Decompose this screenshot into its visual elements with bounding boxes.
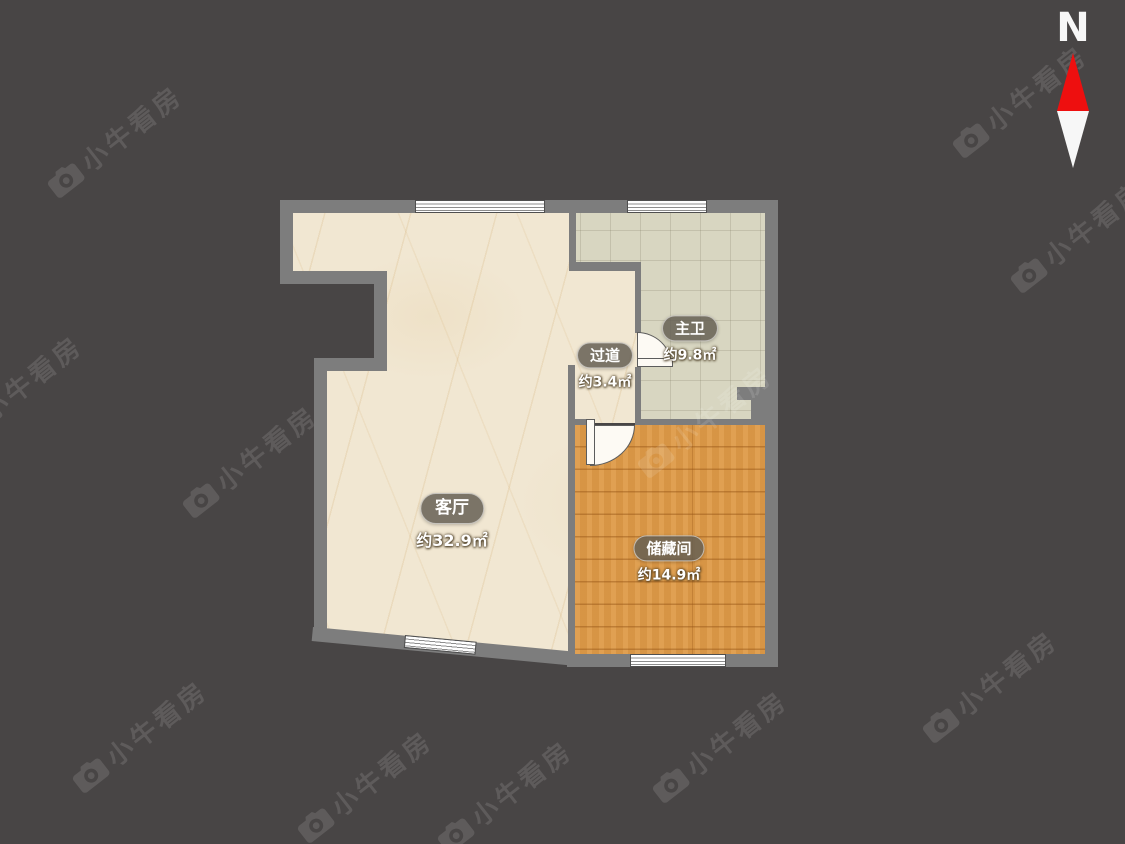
watermark-stamp: 小牛看房	[290, 721, 440, 844]
bathroom-notch-wall-horizontal	[737, 387, 778, 400]
storage-door-leaf	[586, 419, 595, 465]
room-area-living: 约32.9㎡	[416, 527, 487, 551]
compass-north-label: N	[1056, 8, 1089, 48]
floor-plan-screenshot: 客厅 约32.9㎡ 过道 约3.4㎡ 主卫 约9.8㎡ 储藏间 约14.9㎡ 小…	[0, 0, 1125, 844]
window-top-living	[415, 200, 545, 213]
room-name-bathroom: 主卫	[662, 315, 718, 341]
watermark-stamp: 小牛看房	[40, 76, 190, 204]
watermark-text: 小牛看房	[1035, 171, 1125, 274]
wall-hallway-bottom-right	[635, 419, 758, 425]
watermark-stamp: 小牛看房	[65, 671, 215, 799]
watermark-text: 小牛看房	[72, 76, 189, 179]
outer-wall-notch-vertical	[374, 271, 387, 371]
watermark-stamp: 小牛看房	[915, 621, 1065, 749]
room-label-storage: 储藏间 约14.9㎡	[633, 535, 704, 584]
compass-arrow-south-icon	[1057, 111, 1089, 168]
compass-arrow-north-icon	[1057, 53, 1089, 111]
room-label-living: 客厅 约32.9㎡	[416, 493, 487, 551]
room-label-hallway: 过道 约3.4㎡	[577, 342, 633, 391]
wall-hallway-bathroom-upper	[635, 271, 641, 333]
watermark-stamp: 小牛看房	[430, 731, 580, 844]
watermark-stamp: 小牛看房	[1003, 171, 1125, 299]
wall-living-storage	[568, 365, 575, 655]
room-area-storage: 约14.9㎡	[633, 565, 704, 585]
floor-plan: 客厅 约32.9㎡ 过道 约3.4㎡ 主卫 约9.8㎡ 储藏间 约14.9㎡	[280, 200, 778, 667]
watermark-text: 小牛看房	[462, 731, 579, 834]
watermark-stamp: 小牛看房	[0, 326, 90, 454]
compass: N	[1040, 8, 1106, 173]
wall-hallway-bathroom-lower	[635, 367, 641, 419]
room-name-hallway: 过道	[577, 342, 633, 368]
room-label-bathroom: 主卫 约9.8㎡	[662, 315, 718, 364]
room-area-bathroom: 约9.8㎡	[662, 345, 718, 365]
room-name-living: 客厅	[420, 493, 484, 524]
watermark-stamp: 小牛看房	[645, 681, 795, 809]
window-top-bathroom	[627, 200, 707, 213]
window-bottom-storage	[630, 654, 726, 667]
watermark-text: 小牛看房	[97, 671, 214, 774]
watermark-text: 小牛看房	[677, 681, 794, 784]
outer-wall-left-lower	[314, 358, 327, 630]
watermark-text: 小牛看房	[0, 326, 90, 429]
outer-wall-notch-horizontal-1	[280, 271, 387, 284]
watermark-text: 小牛看房	[322, 721, 439, 824]
outer-wall-right	[765, 200, 778, 667]
watermark-text: 小牛看房	[947, 621, 1064, 724]
room-area-hallway: 约3.4㎡	[577, 372, 633, 392]
wall-bathroom-step	[569, 262, 641, 271]
room-name-storage: 储藏间	[633, 535, 704, 561]
